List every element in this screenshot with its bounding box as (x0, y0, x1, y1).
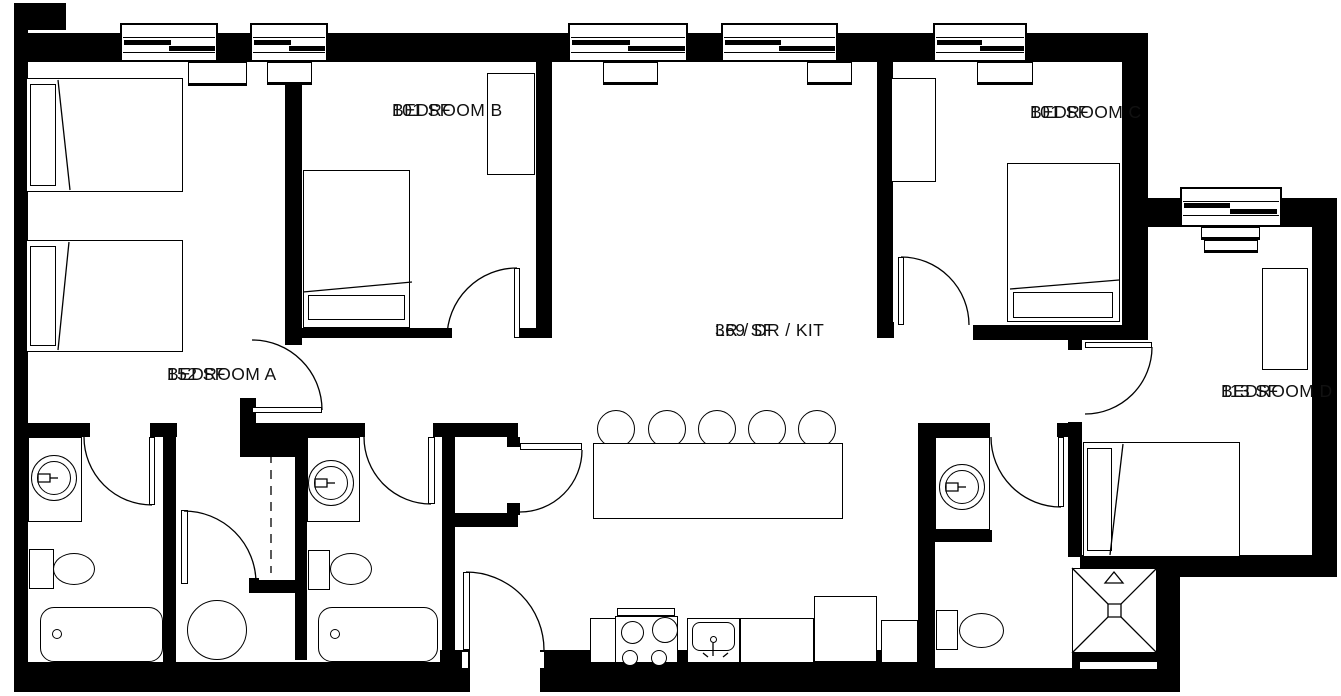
kitchen-counter (881, 620, 918, 663)
wall (1122, 33, 1148, 325)
toilet-bowl (959, 613, 1004, 648)
door-swing-arc (1085, 347, 1152, 414)
window-frame-line (936, 52, 1024, 53)
door-swing-arc (901, 257, 969, 325)
wall (507, 503, 520, 515)
bed-pillow (1087, 448, 1112, 551)
window-sill (603, 62, 658, 85)
window-frame-line (936, 37, 1024, 38)
wall (1148, 198, 1180, 227)
wall-notch (538, 652, 544, 668)
window-pane (169, 46, 215, 51)
wall (1068, 422, 1082, 557)
sink-basin (314, 466, 348, 500)
shower (1072, 568, 1157, 653)
window-pane (937, 40, 982, 45)
wall (442, 437, 455, 650)
door-leaf (1058, 437, 1064, 507)
wardrobe (487, 73, 535, 175)
window-sill (267, 62, 312, 85)
door-leaf (181, 510, 188, 584)
door-swing-arc (364, 437, 431, 504)
wall (285, 62, 302, 345)
bed-headboard (30, 246, 56, 346)
door-leaf (520, 443, 582, 450)
bed-pillow (308, 295, 405, 320)
wardrobe (1262, 268, 1308, 370)
wall (258, 580, 298, 593)
wall (1057, 423, 1068, 437)
bed-pillow (1013, 292, 1113, 318)
window-frame-line (123, 52, 215, 53)
window-pane (254, 40, 291, 45)
window-pane (572, 40, 630, 45)
wall (517, 328, 537, 338)
tub-faucet (52, 629, 62, 639)
wall (150, 423, 177, 437)
wall (452, 513, 518, 527)
door-leaf (514, 268, 520, 338)
door-leaf (1085, 342, 1152, 348)
stove-back-panel (617, 608, 675, 616)
door-leaf (898, 257, 904, 325)
kitchen-counter (740, 618, 814, 663)
window-pane (1230, 209, 1277, 214)
room-area: 152 SF (167, 362, 226, 387)
wall (973, 325, 1148, 340)
window-pane (1184, 203, 1230, 208)
window-frame-line (123, 37, 215, 38)
wall (1068, 337, 1082, 350)
wall (918, 423, 935, 690)
window-pane (628, 46, 685, 51)
room-area: 113 SF (1221, 379, 1279, 404)
wall (933, 530, 992, 542)
wall (536, 62, 552, 338)
window-frame-line (724, 52, 835, 53)
window-sill (807, 62, 852, 85)
window-pane (725, 40, 781, 45)
sink-basin (945, 470, 979, 504)
wall (507, 437, 520, 447)
washer (187, 600, 247, 660)
toilet-tank (936, 610, 958, 650)
window-pane (980, 46, 1024, 51)
window-frame-line (1183, 215, 1279, 216)
door-leaf (428, 437, 435, 504)
toilet-bowl (330, 553, 372, 585)
wall (14, 3, 66, 30)
sink-basin (37, 461, 71, 495)
window-pane (289, 46, 325, 51)
wall (163, 437, 176, 667)
window-sill (188, 62, 247, 86)
window-frame-line (571, 52, 685, 53)
island-table (593, 443, 843, 519)
window-pane (779, 46, 835, 51)
wall-notch (462, 652, 468, 668)
window-sill (1201, 227, 1260, 240)
door-swing-arc (520, 450, 582, 512)
floor-plan: BEDROOM A 152 SF BEDROOM B 101 SF BEDROO… (0, 0, 1341, 696)
room-area: 101 SF (392, 98, 451, 123)
door-swing-arc (991, 437, 1061, 507)
wall (240, 423, 297, 457)
door-swing-arc (84, 437, 152, 505)
wall (14, 423, 90, 437)
wall (295, 423, 307, 660)
bed-headboard (30, 84, 56, 186)
wall (300, 423, 365, 437)
wall (14, 662, 460, 692)
burner (652, 617, 678, 643)
window-sill (977, 62, 1033, 85)
wall (920, 668, 1180, 692)
window-frame-line (253, 52, 325, 53)
wall (433, 423, 518, 437)
door-swing-arc (184, 511, 256, 583)
wall (1282, 198, 1337, 227)
kitchen-faucet (710, 636, 717, 643)
door-swing-arc (466, 572, 544, 650)
burner (622, 650, 638, 666)
wall (918, 423, 990, 437)
door-leaf (252, 407, 322, 413)
wardrobe (891, 78, 936, 182)
door-leaf (149, 437, 155, 505)
tub-faucet (330, 629, 340, 639)
window-frame-line (253, 37, 325, 38)
door-swing-arc (447, 268, 517, 338)
window-sill (1204, 240, 1258, 253)
kitchen-counter (590, 618, 618, 663)
wall-notch (1080, 662, 1157, 669)
room-area: 101 SF (1030, 100, 1089, 125)
wall (877, 322, 894, 338)
wall (302, 328, 452, 338)
window-frame-line (571, 37, 685, 38)
refrigerator (814, 596, 877, 662)
toilet-tank (308, 550, 330, 590)
window-frame-line (1183, 201, 1279, 202)
toilet-tank (29, 549, 54, 589)
toilet-bowl (53, 553, 95, 585)
door-leaf (463, 572, 470, 650)
window-frame-line (724, 37, 835, 38)
burner (621, 621, 644, 644)
window-pane (124, 40, 171, 45)
room-area: 369 SF (715, 318, 774, 343)
burner (651, 650, 667, 666)
